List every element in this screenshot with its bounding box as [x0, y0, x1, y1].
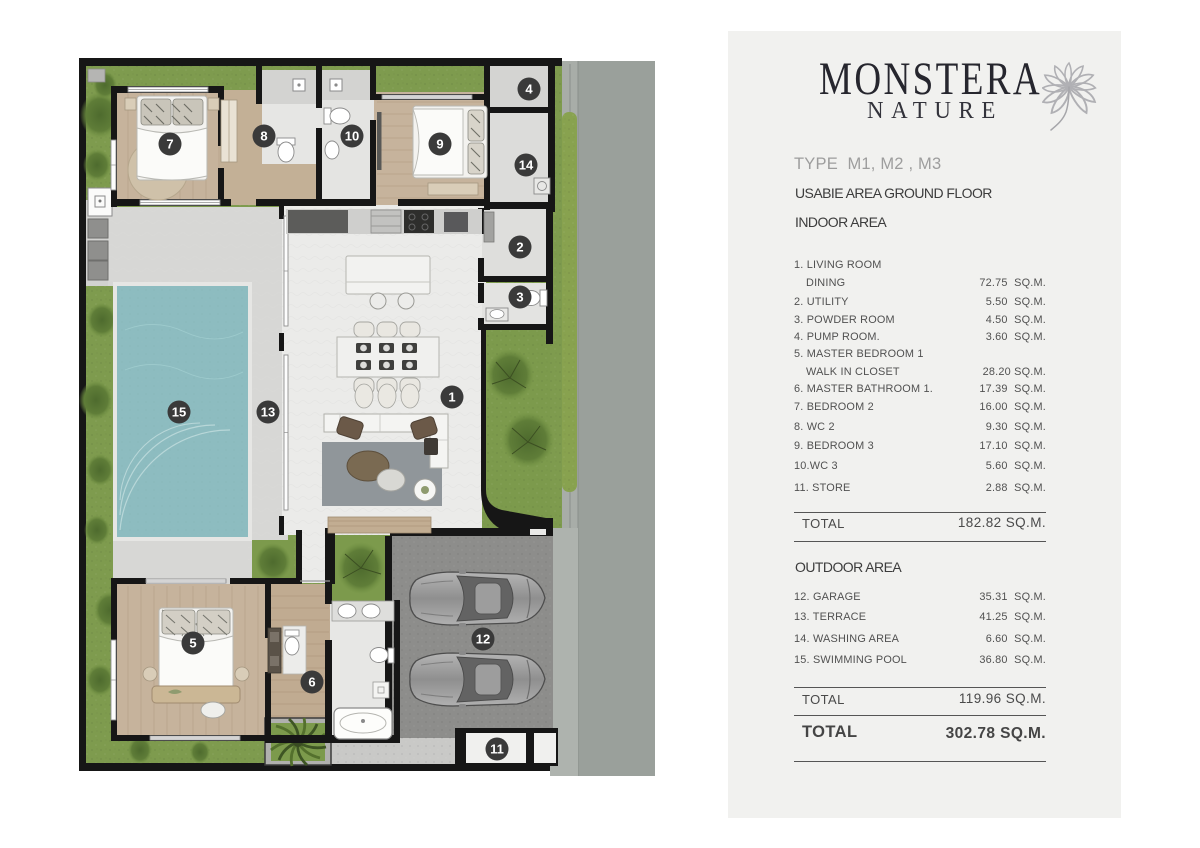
svg-text:NATURE: NATURE — [867, 98, 1003, 124]
svg-text:3: 3 — [516, 290, 523, 305]
svg-text:8: 8 — [260, 129, 267, 144]
svg-text:15: 15 — [172, 405, 186, 420]
svg-text:5: 5 — [189, 636, 196, 651]
svg-text:7: 7 — [166, 137, 173, 152]
svg-text:9: 9 — [436, 137, 443, 152]
svg-text:11: 11 — [490, 742, 504, 757]
svg-text:10: 10 — [345, 129, 359, 144]
svg-text:4: 4 — [525, 82, 533, 97]
svg-text:12: 12 — [476, 632, 490, 647]
svg-text:1: 1 — [448, 390, 455, 405]
svg-text:2: 2 — [516, 240, 523, 255]
svg-text:13: 13 — [261, 405, 275, 420]
svg-text:6: 6 — [308, 675, 315, 690]
svg-text:14: 14 — [519, 158, 534, 173]
